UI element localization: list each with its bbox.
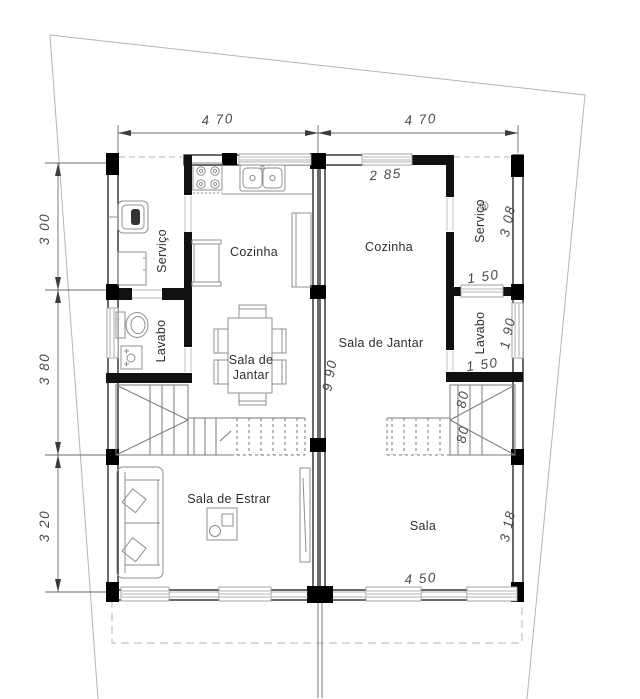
kitchen-sink-icon xyxy=(222,165,313,194)
dim-width-right: 4 70 xyxy=(404,111,437,128)
patio-outline xyxy=(112,600,522,643)
dim-stair-80-lower: 80 xyxy=(453,424,471,445)
room-cozinha-right: Cozinha xyxy=(365,240,413,254)
floor-plan-canvas: 4 704 703 003 803 202 853 081 501 901 50… xyxy=(0,0,640,699)
stairs-right-unit xyxy=(387,385,515,455)
room-jantar-right: Sala de Jantar xyxy=(339,336,424,350)
yard-divider-wall xyxy=(318,602,322,698)
toilet-icon xyxy=(116,312,148,338)
room-lavabo-left: Lavabo xyxy=(154,320,168,363)
room-sala-right: Sala xyxy=(410,519,436,533)
room-lavabo-right: Lavabo xyxy=(473,312,487,355)
room-estar-left: Sala de Estrar xyxy=(187,492,270,506)
dim-servico-window: 1 50 xyxy=(466,267,500,286)
dim-sala-window: 4 50 xyxy=(404,570,437,587)
dim-lavabo-width: 1 50 xyxy=(465,355,499,374)
washbasin-icon xyxy=(121,346,142,369)
dim-left-middle: 3 80 xyxy=(37,353,52,385)
stairs-left-unit xyxy=(116,385,305,455)
sofa xyxy=(117,467,163,578)
coffee-table xyxy=(207,508,237,540)
tv-cabinet xyxy=(300,468,310,562)
room-servico-right: Serviço xyxy=(473,199,487,243)
room-cozinha-left: Cozinha xyxy=(230,245,278,259)
dim-stair-80-upper: 80 xyxy=(453,389,471,410)
dim-left-lower: 3 20 xyxy=(37,510,52,542)
room-jantar-left-2: Jantar xyxy=(233,368,270,382)
floor-plan-page: 4 704 703 003 803 202 853 081 501 901 50… xyxy=(0,0,640,699)
room-servico-left: Serviço xyxy=(155,229,169,273)
dim-kitchen-window: 2 85 xyxy=(368,166,402,184)
fridge-icon xyxy=(192,240,221,286)
washing-machine-icon xyxy=(118,252,146,285)
stove-icon xyxy=(193,163,222,193)
room-jantar-left-1: Sala de xyxy=(229,353,274,367)
dim-width-left: 4 70 xyxy=(201,111,234,128)
kitchen-counter-icon xyxy=(292,213,311,287)
dim-left-upper: 3 00 xyxy=(37,213,52,245)
